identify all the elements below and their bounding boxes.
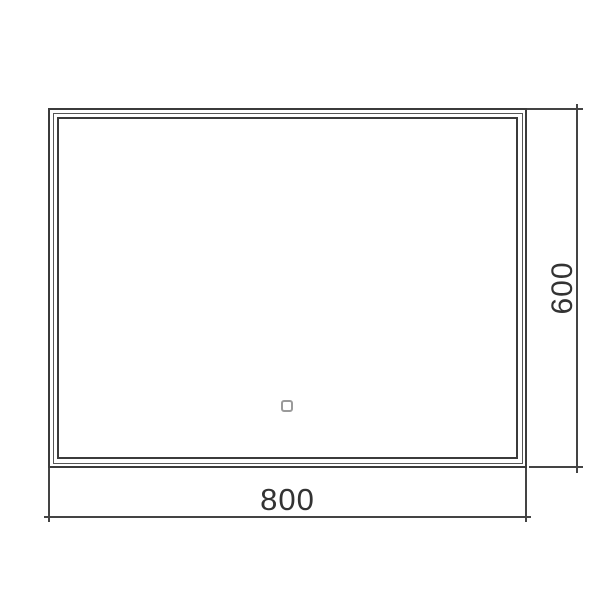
touch-sensor-icon [281,400,293,412]
height-dimension-label: 600 [547,228,579,348]
height-extension-line-top [527,108,583,110]
width-dimension-label: 800 [48,484,527,516]
technical-drawing-canvas: 800 600 [0,0,600,600]
height-extension-line-bottom [529,466,583,468]
